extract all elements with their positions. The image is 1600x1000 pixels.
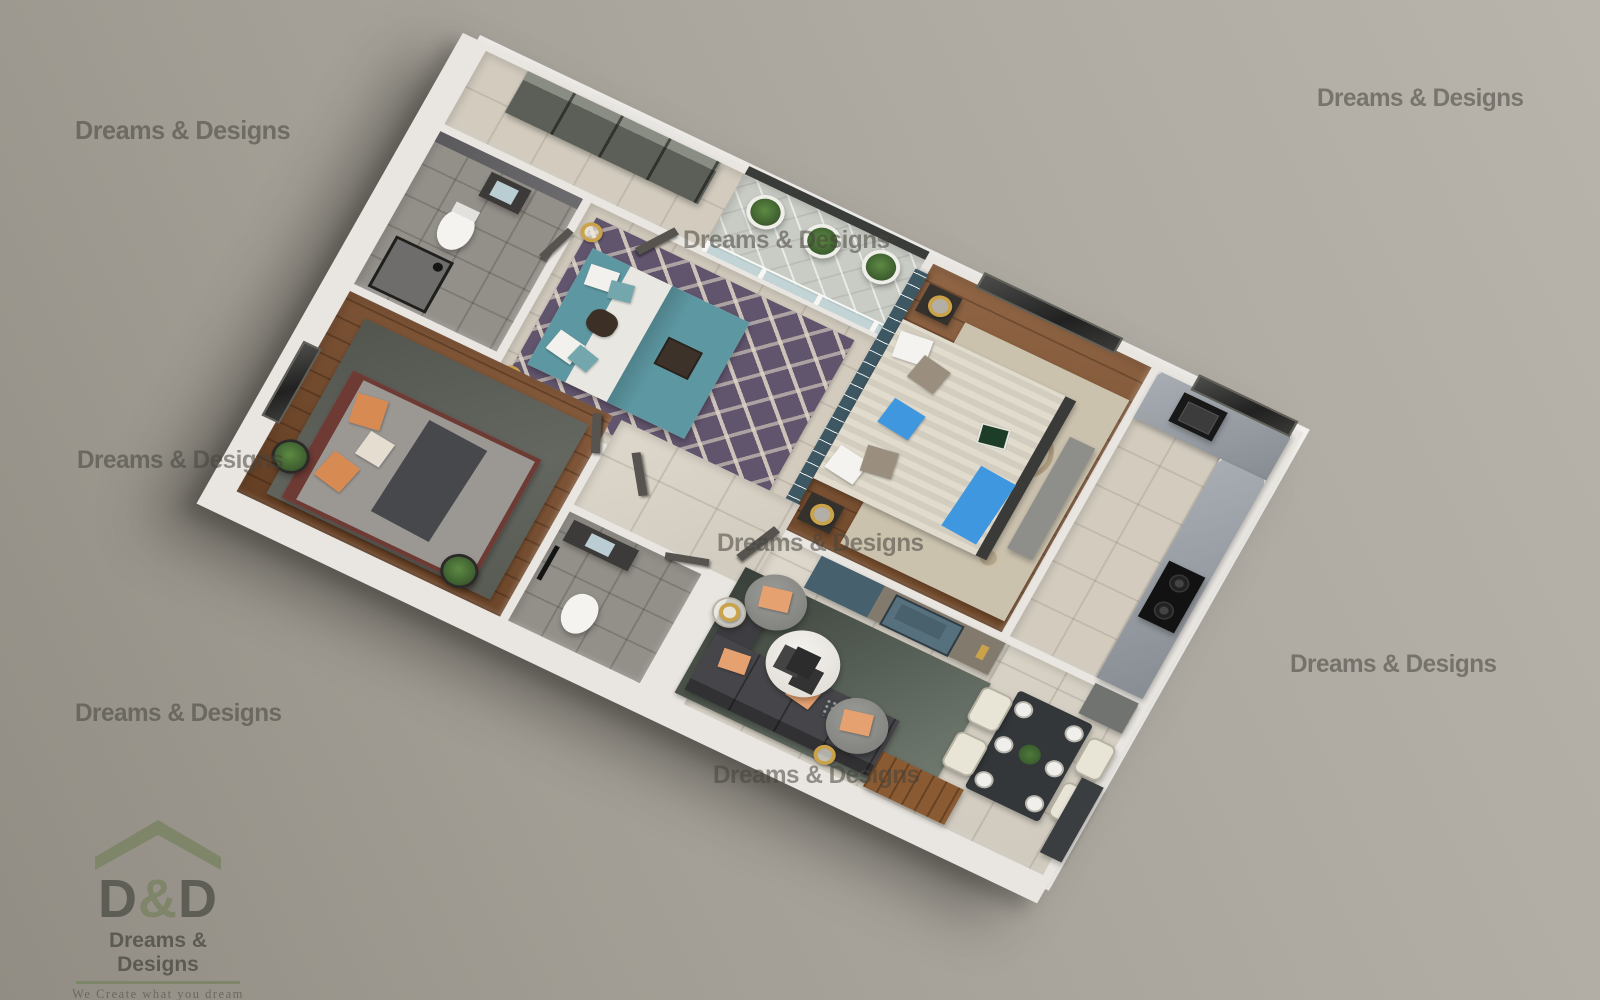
- plate: [991, 733, 1017, 756]
- orange-pillow: [314, 450, 361, 492]
- watermark: Dreams & Designs: [713, 761, 920, 790]
- magazine: [976, 422, 1011, 450]
- logo-monogram-d1: D: [98, 869, 138, 929]
- door-leaf: [591, 413, 602, 453]
- plate: [1061, 722, 1087, 745]
- logo-roof-icon: [95, 820, 221, 870]
- company-logo: D&D Dreams & Designs We Create what you …: [68, 820, 248, 1000]
- plate: [971, 768, 997, 791]
- logo-monogram: D&D: [68, 872, 248, 926]
- logo-divider: [76, 981, 240, 984]
- orange-pillow: [348, 393, 389, 431]
- watermark: Dreams & Designs: [1290, 650, 1497, 679]
- dark-throw: [371, 420, 487, 542]
- watermark: Dreams & Designs: [75, 115, 290, 146]
- watermark: Dreams & Designs: [717, 529, 924, 558]
- plate: [1011, 698, 1037, 721]
- peach-pillow: [718, 648, 752, 675]
- table-centerpiece-plant: [1015, 741, 1045, 768]
- watermark: Dreams & Designs: [1317, 84, 1524, 113]
- watermark: Dreams & Designs: [77, 446, 284, 475]
- floorplan-render-scene: Dreams & Designs Dreams & Designs Dreams…: [0, 0, 1600, 1000]
- plate: [1022, 792, 1048, 815]
- pillow: [860, 445, 900, 480]
- logo-monogram-amp: &: [138, 869, 178, 929]
- company-name: Dreams & Designs: [68, 929, 248, 977]
- blue-pillow: [877, 398, 925, 440]
- decor-bottle: [975, 644, 989, 660]
- pillow: [355, 431, 395, 468]
- plate: [1042, 757, 1068, 780]
- logo-monogram-d2: D: [178, 869, 218, 929]
- watermark: Dreams & Designs: [683, 226, 890, 255]
- company-tagline: We Create what you dream: [68, 987, 248, 1000]
- watermark: Dreams & Designs: [75, 699, 282, 728]
